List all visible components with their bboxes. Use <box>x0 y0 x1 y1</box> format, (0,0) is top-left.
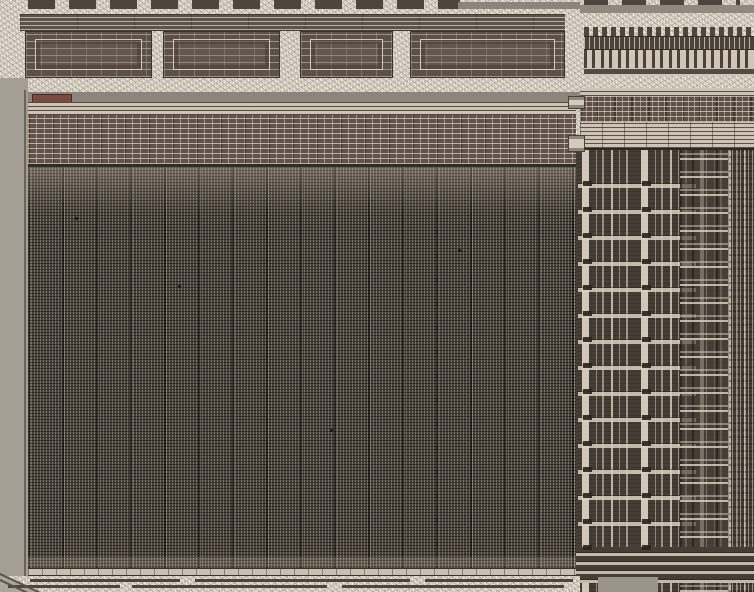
corner-bus-1 <box>580 88 754 96</box>
bottom-gray-pad <box>598 577 658 592</box>
via-column <box>642 162 651 550</box>
corner-bus-2 <box>580 122 754 148</box>
array-contact-row <box>28 167 576 215</box>
logic-block <box>410 31 565 78</box>
sense-cell-column <box>680 150 728 592</box>
corner-gray-rail <box>580 5 754 13</box>
edge-bus-lines <box>728 150 754 592</box>
word-select-bars <box>578 174 696 552</box>
surface-defect <box>458 249 461 252</box>
corner-driver-row <box>580 96 754 122</box>
logic-block-inner <box>173 39 270 70</box>
surface-defect <box>178 285 181 288</box>
die-photo <box>0 0 754 592</box>
corner-buffer-row <box>584 50 754 76</box>
guard-trace-segment <box>195 579 410 582</box>
row-driver-band <box>28 115 576 165</box>
guard-trace-segment <box>425 579 573 582</box>
horizontal-bus <box>25 102 576 115</box>
guard-trace-segment <box>132 585 327 588</box>
top-cell-row <box>28 0 460 9</box>
isolation-beam <box>568 96 585 109</box>
surface-defect <box>75 217 78 220</box>
isolation-beam <box>568 135 585 152</box>
buffer-rail <box>584 69 754 74</box>
logic-block-inner <box>420 39 555 70</box>
logic-block <box>300 31 393 78</box>
via-column <box>583 162 592 550</box>
column-mux-strip <box>576 148 754 592</box>
logic-block <box>163 31 280 78</box>
corner-comb-band <box>584 36 754 50</box>
guard-trace-segment <box>342 585 564 588</box>
logic-block <box>25 31 152 78</box>
memory-array <box>28 165 576 576</box>
gray-rail <box>25 92 580 102</box>
surface-defect <box>330 429 333 432</box>
array-bottom-rail <box>28 568 576 576</box>
top-gray-trace <box>458 2 580 9</box>
array-bottom-contacts <box>28 557 576 567</box>
buffer-gates <box>584 50 754 68</box>
metal-routing-bar <box>20 14 565 31</box>
die-edge-seal-line <box>24 90 26 592</box>
logic-block-inner <box>310 39 383 70</box>
guard-trace-segment <box>30 579 180 582</box>
corner-contact-row <box>584 27 754 36</box>
logic-block-inner <box>35 39 142 70</box>
